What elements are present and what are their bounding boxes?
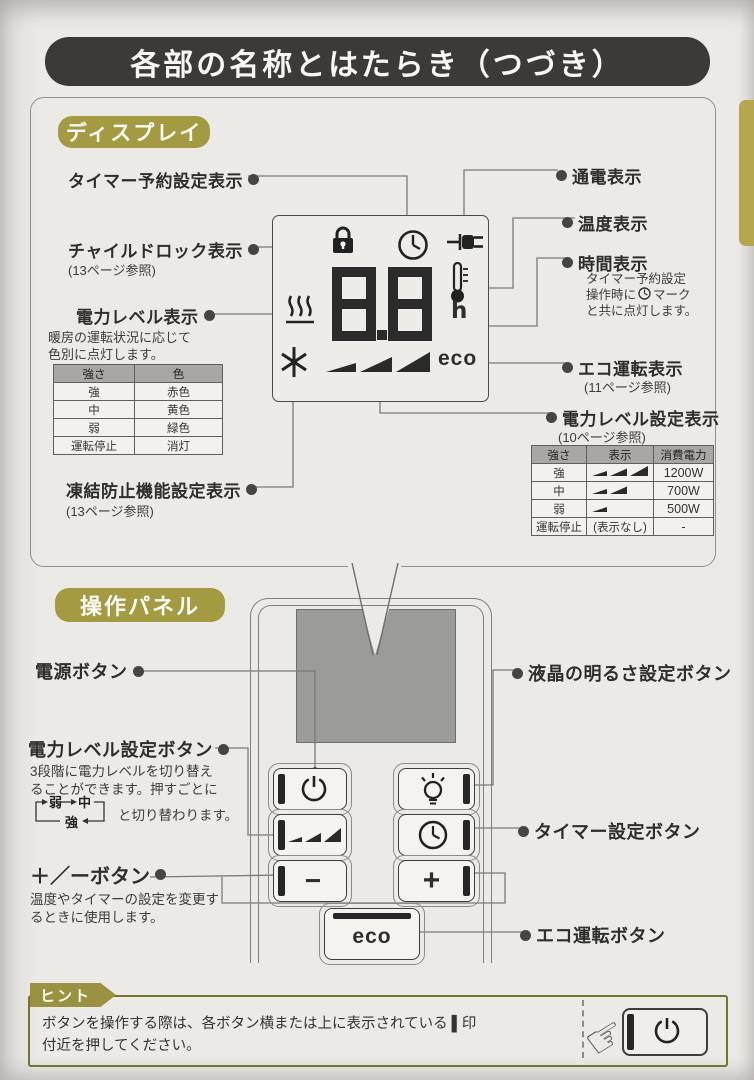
eco-label: eco (352, 925, 391, 949)
power-table-header-watt: 消費電力 (654, 446, 714, 464)
power-plug-icon (447, 231, 485, 253)
power-icon (652, 1016, 682, 1046)
label-power-on: 通電表示 (556, 163, 642, 188)
level-bars-icon (288, 826, 342, 844)
label-timer-reserve-text: タイマー予約設定表示 (68, 167, 243, 192)
power-button[interactable] (273, 768, 347, 810)
table-row: 強赤色 (54, 383, 223, 401)
table-row: 運転停止 (表示なし) - (532, 518, 714, 536)
label-timer-button-text: タイマー設定ボタン (534, 818, 701, 844)
label-timer-button: タイマー設定ボタン (518, 818, 701, 844)
leader-dot (155, 869, 166, 880)
label-temperature: 温度表示 (562, 210, 648, 235)
leader-dot (512, 668, 523, 679)
table-row: 強 1200W (532, 464, 714, 482)
cycle-weak: 弱 (49, 795, 62, 810)
manual-page: 各部の名称とはたらき（つづき） (0, 0, 754, 1080)
display-badge-label: ディスプレイ (66, 117, 203, 147)
page-title-bar: 各部の名称とはたらき（つづき） (45, 37, 710, 86)
label-power-button: 電源ボタン (35, 658, 144, 684)
time-desc3: と共に点灯します。 (586, 300, 697, 319)
hint-badge: ヒント (30, 983, 116, 1007)
label-brightness-button: 液晶の明るさ設定ボタン (512, 660, 732, 686)
timer-icon (417, 819, 449, 851)
press-mark (463, 774, 470, 804)
freeze-snowflake-icon (279, 345, 309, 379)
label-freeze-text: 凍結防止機能設定表示 (66, 477, 241, 502)
leader-dot (248, 244, 259, 255)
plusminus-desc2: るときに使用します。 (30, 906, 164, 926)
label-eco-button-text: エコ運転ボタン (536, 922, 666, 948)
level-desc3: と切り替わります。 (118, 804, 238, 824)
label-eco-button: エコ運転ボタン (520, 922, 666, 948)
leader-dot (562, 362, 573, 373)
hint-line1: ボタンを操作する際は、各ボタン横または上に表示されている ▌印 (42, 1012, 476, 1033)
leader-dot (546, 412, 557, 423)
table-row: 運転停止消灯 (54, 437, 223, 455)
minus-button[interactable]: − (273, 860, 347, 902)
leader-dot (518, 826, 529, 837)
press-mark (278, 774, 285, 804)
hint-badge-label: ヒント (40, 985, 91, 1006)
label-plusminus-text: ＋／ーボタン (30, 860, 150, 889)
leader-dot (218, 744, 229, 755)
heat-level-icon (284, 293, 320, 325)
power-table: 強さ 表示 消費電力 強 1200W 中 700W 弱 500W 運転停止 (表… (531, 445, 714, 536)
panel-badge-label: 操作パネル (80, 589, 200, 621)
cycle-strong: 強 (65, 815, 78, 830)
label-freeze: 凍結防止機能設定表示 (66, 477, 257, 502)
table-row: 弱緑色 (54, 419, 223, 437)
display-digits (332, 267, 436, 341)
bulb-icon (416, 772, 450, 806)
bars-2-icon (592, 483, 648, 495)
power-level-desc2: 色別に点灯します。 (48, 344, 164, 363)
leader-dot (248, 174, 259, 185)
leader-dot (562, 217, 573, 228)
label-level-setting-ref: (10ページ参照) (558, 427, 646, 446)
level-cycle-diagram: 弱 中 強 (28, 794, 114, 834)
eco-indicator: eco (438, 347, 477, 371)
leader-dot (133, 666, 144, 677)
press-mark (278, 820, 285, 850)
label-child-lock-text: チャイルドロック表示 (68, 237, 243, 262)
power-table-header-display: 表示 (587, 446, 654, 464)
color-table: 強さ 色 強赤色 中黄色 弱緑色 運転停止消灯 (53, 364, 223, 455)
label-level-button-text: 電力レベル設定ボタン (28, 736, 213, 762)
label-level-button: 電力レベル設定ボタン (28, 736, 229, 762)
plus-button[interactable]: + (398, 860, 475, 902)
panel-section-badge: 操作パネル (55, 588, 225, 622)
label-power-level-text: 電力レベル表示 (76, 303, 199, 328)
power-table-header-strength: 強さ (532, 446, 587, 464)
bars-1-icon (592, 501, 648, 513)
color-table-header-color: 色 (135, 365, 223, 383)
child-lock-icon (330, 226, 356, 254)
label-brightness-text: 液晶の明るさ設定ボタン (528, 660, 732, 686)
leader-dot (204, 310, 215, 321)
label-temperature-text: 温度表示 (578, 210, 648, 235)
plusminus-desc1: 温度やタイマーの設定を変更す (30, 888, 219, 908)
label-child-lock: チャイルドロック表示 (68, 237, 259, 262)
brightness-button[interactable] (398, 768, 475, 810)
cycle-mid: 中 (78, 795, 91, 810)
timer-button[interactable] (398, 814, 475, 856)
hint-line2: 付近を押してください。 (42, 1034, 201, 1055)
label-power-level: 電力レベル表示 (76, 303, 215, 328)
eco-button[interactable]: eco (324, 908, 420, 960)
bars-3-icon (592, 465, 648, 477)
page-title: 各部の名称とはたらき（つづき） (130, 40, 624, 84)
power-level-bars-icon (326, 351, 432, 375)
plus-label: + (423, 864, 441, 898)
label-power-on-text: 通電表示 (572, 163, 642, 188)
hour-symbol: h (451, 298, 467, 324)
leader-dot (562, 257, 573, 268)
table-row: 中黄色 (54, 401, 223, 419)
level-button[interactable] (273, 814, 347, 856)
clock-mark-icon (638, 287, 651, 300)
leader-dot (246, 484, 257, 495)
label-freeze-ref: (13ページ参照) (66, 501, 154, 520)
label-plusminus-button: ＋／ーボタン (30, 860, 166, 889)
press-mark (463, 866, 470, 896)
label-child-lock-ref: (13ページ参照) (68, 260, 156, 279)
display-section-badge: ディスプレイ (58, 116, 210, 148)
label-power-button-text: 電源ボタン (35, 658, 128, 684)
color-table-header-strength: 強さ (54, 365, 135, 383)
press-mark (463, 820, 470, 850)
label-timer-reserve: タイマー予約設定表示 (68, 167, 259, 192)
minus-label: − (305, 865, 321, 897)
leader-dot (520, 930, 531, 941)
timer-clock-icon (397, 229, 429, 261)
table-row: 中 700W (532, 482, 714, 500)
table-row: 弱 500W (532, 500, 714, 518)
level-desc1: 3段階に電力レベルを切り替え (30, 760, 213, 780)
power-icon (299, 774, 329, 804)
leader-dot (556, 170, 567, 181)
press-mark (278, 866, 285, 896)
label-eco-ref: (11ページ参照) (584, 377, 671, 396)
press-mark (333, 913, 411, 919)
